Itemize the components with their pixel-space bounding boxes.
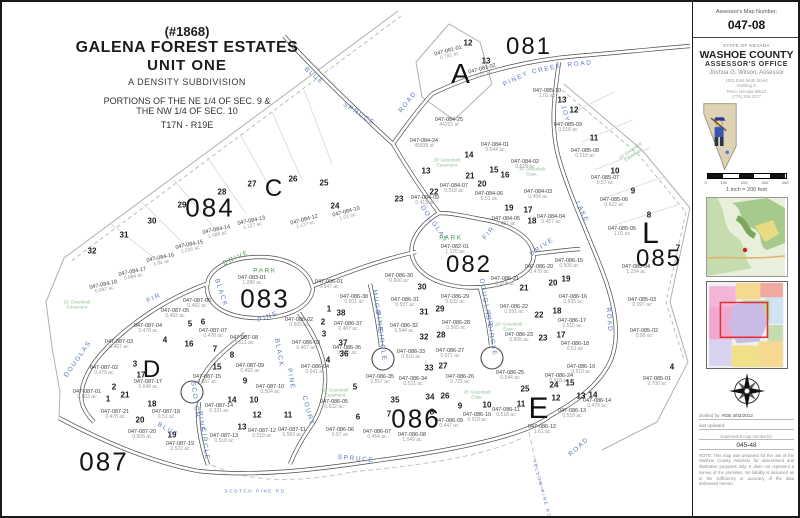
index-inset-map xyxy=(706,281,788,369)
parcel-label: 047-084-2445839 sf xyxy=(410,138,438,150)
lot-number: 29 xyxy=(436,305,445,314)
easement-label: 30' GreenbeltEasement xyxy=(322,388,349,399)
parcel-label: 047-086-100.518 ac xyxy=(463,412,491,424)
parcel-label: 047-087-090.492 ac xyxy=(236,363,264,375)
parcel-label: 047-086-260.725 ac xyxy=(446,374,474,386)
lot-number: 9 xyxy=(243,377,247,386)
parcel-label: 047-085-090.518 ac xyxy=(554,122,582,134)
parcel-label: 047-085-060.622 ac xyxy=(600,197,628,209)
lot-number: 2 xyxy=(112,383,116,392)
subdivision-name: GALENA FOREST ESTATES xyxy=(54,39,320,57)
parcel-label: 047-087-140.331 ac xyxy=(205,403,233,415)
lot-number: 25 xyxy=(320,179,329,188)
lot-number: 23 xyxy=(395,195,404,204)
lot-number: 38 xyxy=(337,309,346,318)
road-label: LAKE xyxy=(574,200,590,224)
lot-number: 13 xyxy=(482,57,491,66)
parcel-label: 047-084-180.997 ac xyxy=(89,279,119,297)
lot-number: 13 xyxy=(238,423,247,432)
parcel-label: 047-086-030.467 ac xyxy=(292,340,320,352)
subdivision-type: A DENSITY SUBDIVISION xyxy=(54,77,320,87)
superseded-map-number: 045-48 xyxy=(699,442,794,450)
footer-block: drafted by: #GB 4/02/2012 last updated: … xyxy=(693,413,800,487)
lot-number: 19 xyxy=(505,204,514,213)
state-label: STATE OF NEVADA xyxy=(693,43,800,48)
lot-number: 14 xyxy=(465,151,474,160)
lot-number: 13 xyxy=(422,167,431,176)
parcel-label: 047-085-080.518 ac xyxy=(571,148,599,160)
parcel-label: 047-086-070.454 ac xyxy=(363,429,391,441)
parcel-label: 047-087-040.478 ac xyxy=(134,323,162,335)
lot-number: 33 xyxy=(425,364,434,373)
lot-number: 15 xyxy=(490,166,499,175)
lot-number: 17 xyxy=(557,331,566,340)
parcel-label: 047-086-050.632 ac xyxy=(320,399,348,411)
nevada-state-icon xyxy=(693,101,800,173)
lot-number: 6 xyxy=(201,318,205,327)
office-label: ASSESSOR'S OFFICE xyxy=(693,61,800,68)
parcel-label: 047-084-030.454 ac xyxy=(524,189,552,201)
block-letter: A xyxy=(451,58,471,90)
road-label: PINEY xyxy=(502,70,530,88)
lot-number: 8 xyxy=(230,351,234,360)
road-label: COURT xyxy=(301,395,316,427)
lot-number: 13 xyxy=(558,96,567,105)
easement-label: 30' GreenbeltEase. xyxy=(519,167,546,178)
parcel-label: 047-086-140.478 ac xyxy=(583,398,611,410)
road-label: BLACK xyxy=(273,338,285,368)
parcel-label: 047-086-010.547 ac xyxy=(315,279,343,291)
parcel-label: 047-084-050.457 ac xyxy=(492,216,520,228)
lot-number: 32 xyxy=(420,333,429,342)
parcel-label: 047-085-030.997 ac xyxy=(628,297,656,309)
subdivision-unit: UNIT ONE xyxy=(54,57,320,74)
compass-rose-icon xyxy=(728,372,766,410)
area-number: 083 xyxy=(240,284,289,315)
parcel-label: 047-084-070.518 ac xyxy=(440,183,468,195)
parcel-label: 047-087-080.511 ac xyxy=(230,335,258,347)
lot-number: 1 xyxy=(327,305,331,314)
lot-number: 23 xyxy=(539,334,548,343)
lot-number: 4 xyxy=(163,336,167,345)
parcel-label: 047-086-020.505 ac xyxy=(285,317,313,329)
parcel-label: 047-086-060.57 ac xyxy=(326,427,354,439)
map-number-value: 047-08 xyxy=(693,18,800,32)
lot-number: 12 xyxy=(253,411,262,420)
lot-number: 24 xyxy=(331,202,340,211)
lot-number: 31 xyxy=(120,231,129,240)
lot-number: 4 xyxy=(326,356,330,365)
road-label: DOUGLAS xyxy=(63,339,93,378)
office-address: 1001 East Ninth StreetBuilding DReno, Ne… xyxy=(693,78,800,100)
lot-number: 18 xyxy=(148,400,157,409)
area-number: 085 xyxy=(636,245,682,273)
drafted-by-line: drafted by: #GB 4/02/2012 xyxy=(699,413,794,420)
county-label: WASHOE COUNTY xyxy=(693,49,800,61)
road-label: PINE xyxy=(286,368,297,390)
lot-number: 21 xyxy=(520,284,529,293)
lot-number: 16 xyxy=(501,171,510,180)
superseded-label: superseded map number(s): xyxy=(699,434,794,440)
area-number: 086 xyxy=(391,404,440,435)
area-number: 082 xyxy=(446,251,492,279)
parcel-label: 047-086-110.518 ac xyxy=(492,407,520,419)
parcel-label: 047-087-180.51 ac xyxy=(152,409,180,421)
road-label: PARK xyxy=(253,268,277,275)
lot-number: 22 xyxy=(535,311,544,320)
parcel-label: 047-087-150.557 ac xyxy=(193,374,221,386)
lot-number: 14 xyxy=(228,396,237,405)
easement-label: 20' GreenbeltEase. xyxy=(464,390,491,401)
sidebar: Assessor's Map Number: 047-08 STATE OF N… xyxy=(692,2,800,516)
scale-bar-graphic xyxy=(707,173,787,179)
parcel-label: 047-086-160.635 ac xyxy=(559,294,587,306)
parcel-label: 047-084-131.127 ac xyxy=(237,215,267,233)
parcel-label: 047-085-020.86 ac xyxy=(630,328,658,340)
parcel-label: 047-084-161.01 ac xyxy=(146,252,176,270)
parcel-label: 047-086-290.632 ac xyxy=(441,294,469,306)
road-label: ROAD xyxy=(397,90,418,114)
lot-number: 36 xyxy=(340,350,349,359)
parcel-label: 047-086-310.557 ac xyxy=(391,297,419,309)
road-label: FIR xyxy=(481,225,496,241)
lot-number: 9 xyxy=(458,402,462,411)
road-label: DRIVE xyxy=(222,249,250,267)
parcel-label: 047-087-210.478 ac xyxy=(101,409,129,421)
disclaimer-note: NOTE: This map was prepared for the use … xyxy=(699,453,794,487)
parcel-label: 047-084-151.026 ac xyxy=(175,239,205,257)
lot-number: 12 xyxy=(570,106,579,115)
parcel-label: 047-086-200.478 ac xyxy=(525,264,553,276)
lot-number: 22 xyxy=(430,188,439,197)
lot-number: 12 xyxy=(464,39,473,48)
parcel-label: 047-087-130.518 ac xyxy=(210,433,238,445)
road-label: SCOTCH PINE RD xyxy=(225,489,286,494)
area-number: 084 xyxy=(185,193,234,224)
block-letter: E xyxy=(528,392,549,426)
lot-number: 10 xyxy=(611,167,620,176)
lot-number: 26 xyxy=(289,175,298,184)
section-portion-line1: PORTIONS OF THE NE 1/4 OF SEC. 9 & xyxy=(54,96,320,106)
parcel-label: 047-087-060.482 ac xyxy=(183,298,211,310)
parcel-label: 047-087-110.583 ac xyxy=(278,427,306,439)
parcel-label: 047-085-012.700 ac xyxy=(643,376,671,388)
road-label: CREEK xyxy=(531,62,562,75)
road-label: FIR xyxy=(146,292,163,305)
parcel-label: 047-084-2544201 sf xyxy=(435,117,463,129)
assessor-map-page: 047-081-010.781 ac047-081-020.57 ac047-0… xyxy=(0,0,800,518)
last-updated-line: last updated: xyxy=(699,423,794,430)
lot-number: 14 xyxy=(589,391,598,400)
lot-number: 19 xyxy=(562,275,571,284)
parcel-label: 047-084-060.51 ac xyxy=(475,191,503,203)
parcel-label: 047-087-070.478 ac xyxy=(199,328,227,340)
parcel-label: 047-087-190.522 ac xyxy=(166,441,194,453)
map-area: 047-081-010.781 ac047-081-020.57 ac047-0… xyxy=(2,2,692,516)
parcel-label: 047-084-010.544 ac xyxy=(481,142,509,154)
office-block: STATE OF NEVADA WASHOE COUNTY ASSESSOR'S… xyxy=(693,43,800,100)
lot-number: 5 xyxy=(353,383,357,392)
parcel-label: 047-085-051.01 ac xyxy=(608,226,636,238)
parcel-label: 047-086-350.557 ac xyxy=(366,374,394,386)
lot-number: 31 xyxy=(420,308,429,317)
lot-number: 15 xyxy=(566,379,575,388)
road-label: CIRCLE xyxy=(376,328,388,362)
parcel-label: 047-086-340.531 ac xyxy=(399,376,427,388)
road-label: ROAD xyxy=(567,59,593,69)
map-number-box: Assessor's Map Number: 047-08 xyxy=(693,2,800,38)
scale-text: 1 inch = 200 feet xyxy=(693,187,800,193)
road-label: DRIVE xyxy=(529,236,556,258)
parcel-label: 047-087-020.479 ac xyxy=(90,365,118,377)
lot-number: 32 xyxy=(88,247,97,256)
parcel-label: 047-085-070.57 ac xyxy=(591,175,619,187)
lot-number: 18 xyxy=(553,307,562,316)
parcel-label: 047-086-170.510 ac xyxy=(558,318,586,330)
township-range: T17N - R19E xyxy=(54,120,320,130)
lot-number: 34 xyxy=(426,393,435,402)
parcel-label: 047-086-270.571 ac xyxy=(436,348,464,360)
scale-bar: 0100200300400 1 inch = 200 feet xyxy=(693,173,800,193)
parcel-label: 047-086-210.318 ac xyxy=(491,276,519,288)
lot-number: 6 xyxy=(356,413,360,422)
easement-label: 30' GreenbeltEasement xyxy=(434,158,461,169)
parcel-label: 047-086-320.544 ac xyxy=(390,323,418,335)
area-number: 087 xyxy=(79,447,128,478)
parcel-label: 047-086-130.518 ac xyxy=(558,408,586,420)
parcel-label: 047-086-330.516 ac xyxy=(397,349,425,361)
lot-number: 10 xyxy=(250,396,259,405)
lot-number: 20 xyxy=(549,279,558,288)
lot-number: 12 xyxy=(552,394,561,403)
assessor-name: Joshua G. Wilson, Assessor xyxy=(693,70,800,76)
lot-number: 30 xyxy=(148,217,157,226)
lot-number: 2 xyxy=(321,318,325,327)
lot-number: 24 xyxy=(550,381,559,390)
parcel-label: 047-087-010.503 ac xyxy=(73,389,101,401)
easement-label: 20' GreenbeltEase. xyxy=(496,322,523,333)
lot-number: 11 xyxy=(590,134,598,143)
lot-number: 3 xyxy=(133,360,137,369)
road-label: CIRCLE xyxy=(199,427,210,461)
road-label: YELLOW PINE RD xyxy=(532,459,553,518)
road-label: BLACK xyxy=(213,278,229,308)
parcel-label: 047-086-380.601 ac xyxy=(340,294,368,306)
lot-number: 26 xyxy=(441,392,450,401)
lot-number: 16 xyxy=(185,340,194,349)
lot-number: 21 xyxy=(121,391,130,400)
lot-number: 3 xyxy=(322,330,326,339)
parcel-label: 047-084-170.984 ac xyxy=(118,266,148,284)
parcel-label: 047-086-370.467 ac xyxy=(334,321,362,333)
parcel-label: 047-087-030.467 ac xyxy=(105,339,133,351)
lot-number: 9 xyxy=(631,187,635,196)
parcel-label: 047-087-120.518 ac xyxy=(248,428,276,440)
parcel-label: 047-086-180.51 ac xyxy=(561,341,589,353)
location-inset-map xyxy=(706,197,788,277)
parcel-label: 047-087-100.504 ac xyxy=(256,384,284,396)
road-label: ROAD xyxy=(567,436,590,458)
parcel-label: 047-086-150.505 ac xyxy=(555,258,583,270)
block-letter: D xyxy=(143,356,161,384)
lot-number: 28 xyxy=(437,331,446,340)
lot-number: 17 xyxy=(524,206,533,215)
road-label: SPRUCE xyxy=(342,101,377,127)
lot-number: 7 xyxy=(213,345,217,354)
lot-number: 37 xyxy=(339,339,348,348)
scale-ticks: 0100200300400 xyxy=(705,180,789,185)
block-letter: C xyxy=(265,175,283,203)
parcel-label: 047-086-230.655 ac xyxy=(505,332,533,344)
lot-number: 1 xyxy=(106,395,110,404)
lot-number: 30 xyxy=(418,283,427,292)
lot-number: 11 xyxy=(284,411,292,420)
lot-number: 15 xyxy=(213,363,222,372)
lot-number: 5 xyxy=(188,320,192,329)
lot-number: 4 xyxy=(670,363,674,372)
lot-number: 27 xyxy=(439,362,448,371)
lot-number: 20 xyxy=(478,180,487,189)
lot-number: 11 xyxy=(517,400,525,409)
parcel-label: 047-084-040.457 ac xyxy=(537,214,565,226)
area-number: 081 xyxy=(506,33,552,61)
lot-number: 13 xyxy=(577,392,586,401)
lot-number: 18 xyxy=(528,217,537,226)
parcel-label: 047-086-220.591 ac xyxy=(500,304,528,316)
parcel-label: 047-086-300.600 ac xyxy=(385,273,413,285)
map-number-label: Assessor's Map Number: xyxy=(693,9,800,15)
lot-number: 27 xyxy=(248,180,257,189)
lot-number: 10 xyxy=(483,401,492,410)
title-block: (#1868) GALENA FOREST ESTATES UNIT ONE A… xyxy=(54,24,320,130)
lot-number: 20 xyxy=(136,416,145,425)
parcel-label: 047-086-280.565 ac xyxy=(442,320,470,332)
section-portion-line2: THE NW 1/4 OF SEC. 10 xyxy=(54,106,320,116)
parcel-label: 047-086-250.544 ac xyxy=(496,370,524,382)
parcel-label: 047-084-141.088 ac xyxy=(202,224,232,242)
easement-label: 20' GreenbeltEasement xyxy=(64,300,91,311)
road-label: SPRUCE xyxy=(337,454,374,464)
road-label: PARK xyxy=(439,235,463,242)
parcel-label: 047-086-040.641 ac xyxy=(301,364,329,376)
map-permit-number: (#1868) xyxy=(54,24,320,39)
road-label: ROAD xyxy=(604,307,613,333)
parcel-label: 047-087-200.505 ac xyxy=(128,429,156,441)
parcel-label: 047-084-121.127 ac xyxy=(290,214,320,233)
easement-label: 20' GreenbeltEasement xyxy=(618,141,646,165)
drafted-date: #GB 4/02/2012 xyxy=(722,413,753,418)
lot-number: 21 xyxy=(466,172,475,181)
